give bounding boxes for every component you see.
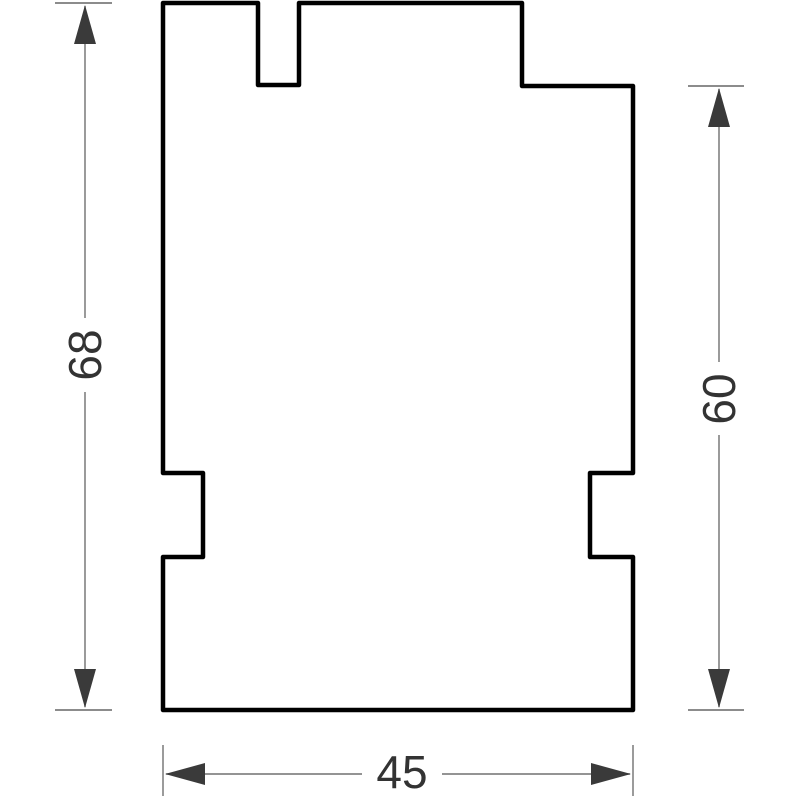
dimension-60: 60 — [688, 86, 745, 710]
arrow-right-icon — [591, 763, 631, 785]
arrow-up-icon — [74, 5, 96, 44]
arrow-down-icon — [74, 669, 96, 708]
dimension-68-label: 68 — [59, 329, 111, 380]
arrow-down-icon — [708, 669, 730, 708]
arrow-left-icon — [165, 763, 205, 785]
dimension-45-label: 45 — [376, 746, 427, 798]
technical-drawing-canvas: 68 60 — [0, 0, 800, 800]
drawing-root: 68 60 — [0, 0, 800, 800]
part-outline — [163, 3, 633, 710]
arrow-up-icon — [708, 88, 730, 127]
dimension-60-label: 60 — [693, 373, 745, 424]
dimension-68: 68 — [55, 3, 112, 710]
dimension-45: 45 — [163, 745, 633, 798]
